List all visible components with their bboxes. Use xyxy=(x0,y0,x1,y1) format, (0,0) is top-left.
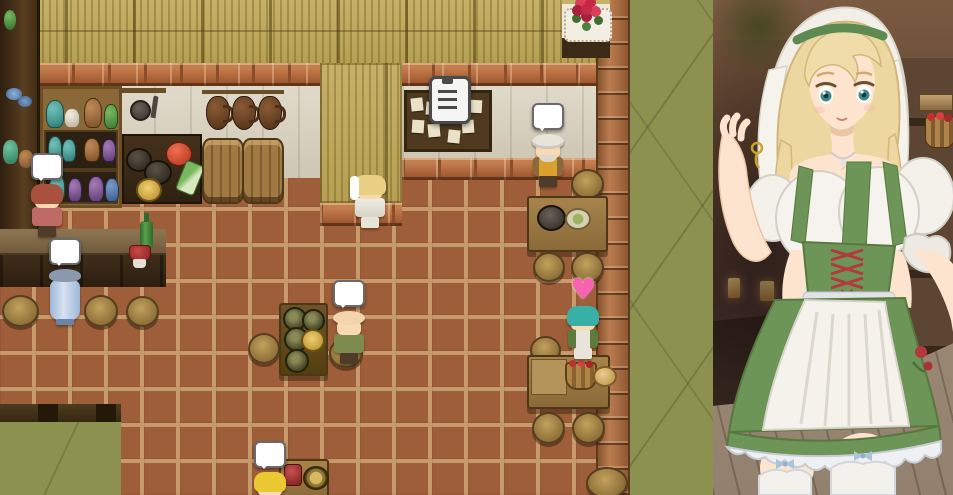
blue-jar-icon xyxy=(105,178,119,202)
hanging-jug-icon xyxy=(232,96,256,130)
player-character xyxy=(350,175,390,229)
npc-sprite xyxy=(529,134,567,188)
brick-ledge-top xyxy=(0,63,596,86)
npc-sprite xyxy=(330,311,368,365)
sprite-hair xyxy=(31,184,63,204)
npc-blonde-kid[interactable] xyxy=(250,441,290,495)
heart-icon: ♥ xyxy=(568,277,598,302)
keg-table xyxy=(279,303,328,376)
sprite-legs xyxy=(56,319,74,325)
gold-plate-icon xyxy=(301,329,325,352)
hanging-jug-icon xyxy=(206,96,230,130)
sprite-legs xyxy=(539,176,557,187)
npc-shopkeeper[interactable] xyxy=(27,153,67,238)
stool xyxy=(126,296,159,327)
npc-blue-patron[interactable] xyxy=(45,238,85,339)
speech-bubble-icon[interactable] xyxy=(254,441,286,468)
spatula-icon xyxy=(150,96,158,118)
frying-pan-icon xyxy=(130,100,151,121)
speech-bubble-icon[interactable] xyxy=(31,153,63,180)
sprite-hair xyxy=(354,175,386,195)
vegetable-crate xyxy=(122,134,202,204)
rose-leaves-icon xyxy=(572,14,581,23)
npc-sprite xyxy=(46,269,84,339)
keg-icon xyxy=(285,349,309,373)
sprite-body xyxy=(32,207,62,226)
hanging-jug-rack xyxy=(202,88,284,138)
paper-note xyxy=(447,129,460,143)
paper-note xyxy=(412,120,425,134)
speech-bubble-icon[interactable] xyxy=(49,238,81,265)
soup-bowl-icon xyxy=(565,208,591,230)
npc-sprite xyxy=(251,472,289,495)
green-bottle-icon xyxy=(4,10,16,30)
red-roses-icon xyxy=(581,4,592,15)
dining-table-oldman xyxy=(527,196,608,252)
clay-jug-icon xyxy=(84,138,100,162)
red-cup xyxy=(129,245,151,261)
sprite-hair xyxy=(567,306,599,326)
food-plate-icon xyxy=(303,466,329,490)
hanging-jug-icon xyxy=(258,96,282,130)
npc-teal-adventurer[interactable]: ♥ xyxy=(563,277,603,360)
sprite-body xyxy=(355,198,385,217)
stool xyxy=(84,295,118,327)
green-bottle-icon xyxy=(104,104,118,129)
stool xyxy=(571,169,604,199)
stool xyxy=(586,467,628,495)
straw-wall-top xyxy=(0,0,596,63)
kitchen-utensil-rack xyxy=(122,88,166,132)
sprite-body xyxy=(334,334,364,353)
game-screenshot: ♥ xyxy=(0,0,953,495)
sprite-legs xyxy=(340,353,358,364)
sprite-legs xyxy=(38,226,56,237)
speech-bubble-icon[interactable] xyxy=(532,103,564,130)
purple-jar-icon xyxy=(102,139,116,162)
npc-bald-patron[interactable] xyxy=(329,280,369,365)
rose-bouquet-table xyxy=(562,0,610,58)
stool xyxy=(2,295,39,327)
sprite-hair xyxy=(254,472,286,492)
paper-note xyxy=(410,97,423,111)
stool xyxy=(572,412,605,444)
sprite-hair xyxy=(49,269,81,282)
sprite-turban xyxy=(532,134,564,149)
green-floor-bottom-left xyxy=(0,422,121,495)
stool xyxy=(248,333,280,364)
paper-note xyxy=(427,124,440,138)
purple-jar-icon xyxy=(88,176,104,202)
bread-plate-icon xyxy=(593,366,617,387)
sprite-bald-head xyxy=(333,311,365,325)
storage-barrel xyxy=(242,138,284,204)
dining-table-apples xyxy=(527,355,610,409)
white-pot-icon xyxy=(64,108,80,128)
paper-note xyxy=(470,100,483,114)
table-board xyxy=(531,359,567,395)
npc-old-man[interactable] xyxy=(528,103,568,188)
storage-barrel xyxy=(202,138,244,204)
sprite-legs xyxy=(574,348,592,359)
gold-plate-icon xyxy=(136,178,162,202)
quest-board-icon[interactable] xyxy=(429,76,471,124)
green-vase-icon xyxy=(3,140,18,164)
barmaid-portrait xyxy=(713,0,953,495)
sprite-body xyxy=(50,280,80,320)
teal-jar-icon xyxy=(46,100,64,128)
speech-bubble-icon[interactable] xyxy=(333,280,365,307)
player-sprite xyxy=(351,175,389,229)
sprite-body xyxy=(568,329,598,348)
blue-plate-icon xyxy=(18,96,32,107)
wood-wall-edge-bottom-left xyxy=(0,404,121,423)
brown-vase-icon xyxy=(84,98,102,128)
cooking-pot-icon xyxy=(537,205,566,231)
stool xyxy=(532,412,565,444)
npc-sprite xyxy=(564,306,602,360)
sprite-legs xyxy=(361,217,379,228)
stool xyxy=(533,252,565,282)
barmaid-illustration xyxy=(713,0,953,495)
npc-sprite xyxy=(28,184,66,238)
purple-jar-icon xyxy=(68,178,82,202)
green-floor-right xyxy=(628,0,720,495)
